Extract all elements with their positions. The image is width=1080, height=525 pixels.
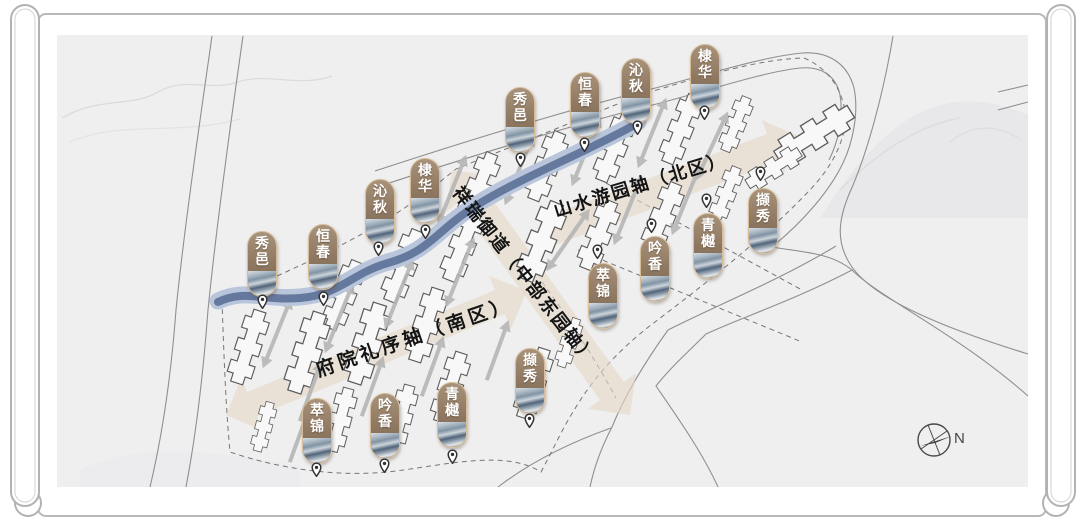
marker-label-char-2: 香 [378,414,392,430]
marker-xiexiu-south: 撷 秀 [515,348,545,414]
marker-label-char-1: 棣 [698,49,712,65]
scroll-rod-left [10,4,40,507]
pin-icon-qingyue-east [701,193,712,208]
marker-capsule: 吟 香 [640,236,670,302]
marker-xiuyi-west: 秀 邑 [247,231,277,297]
pin-icon-cuijin-south [311,462,322,477]
pin-icon-qinqiu-west [373,241,384,256]
marker-capsule: 青 樾 [437,382,467,448]
pin-icon-xiexiu-south [524,413,535,428]
marker-photo [589,303,617,328]
marker-capsule: 秀 邑 [247,231,277,297]
marker-xiuyi-north: 秀 邑 [505,87,535,153]
marker-label-char-1: 萃 [310,403,324,419]
marker-capsule: 棣 华 [690,44,720,110]
marker-label-char-1: 萃 [596,268,610,284]
pin-icon-cuijin-east [592,244,603,259]
scroll-rod-right [1046,4,1076,507]
marker-qinqiu-west: 沁 秋 [365,179,395,245]
marker-photo [506,127,534,152]
marker-photo [371,433,399,458]
marker-label-char-2: 香 [648,257,662,273]
marker-photo [303,438,331,463]
marker-label-char-2: 邑 [255,252,269,268]
pin-icon-qinqiu-north [632,120,643,135]
marker-photo [694,253,722,278]
marker-photo [411,198,439,223]
pin-icon-xiuyi-north [515,152,526,167]
marker-label-char-1: 撷 [523,353,537,369]
marker-label-char-2: 秀 [756,209,770,225]
marker-capsule: 吟 香 [370,393,400,459]
marker-dihua-north: 棣 华 [690,44,720,110]
pin-icon-yinxiang-south [379,458,390,473]
marker-yinxiang-east: 吟 香 [640,236,670,302]
marker-label-char-2: 锦 [310,419,324,435]
marker-label-char-2: 华 [418,179,432,195]
marker-photo [571,112,599,137]
marker-label-char-1: 吟 [648,241,662,257]
marker-capsule: 恒 春 [570,72,600,138]
pin-icon-hengchun-west [318,291,329,306]
marker-capsule: 秀 邑 [505,87,535,153]
marker-capsule: 沁 秋 [365,179,395,245]
marker-capsule: 沁 秋 [621,58,651,124]
marker-hengchun-north: 恒 春 [570,72,600,138]
marker-photo [749,228,777,253]
pin-icon-xiuyi-west [257,294,268,309]
marker-photo [248,271,276,296]
marker-label-char-1: 吟 [378,398,392,414]
marker-label-char-1: 秀 [255,236,269,252]
marker-qinqiu-north: 沁 秋 [621,58,651,124]
marker-label-char-1: 青 [445,387,459,403]
marker-cuijin-east: 萃 锦 [588,263,618,329]
marker-label-char-2: 秀 [523,369,537,385]
marker-dihua-west: 棣 华 [410,158,440,224]
marker-label-char-1: 秀 [513,92,527,108]
marker-qingyue-east: 青 樾 [693,213,723,279]
marker-label-char-1: 棣 [418,163,432,179]
marker-label-char-1: 恒 [578,77,592,93]
marker-label-char-2: 华 [698,65,712,81]
marker-photo [641,276,669,301]
marker-hengchun-west: 恒 春 [308,224,338,290]
site-plan-scroll: 山水游园轴（北区） 祥瑞御道（中部东园轴） 府院礼序轴（南区） 秀 邑 恒 春 … [0,0,1080,525]
marker-label-char-2: 樾 [701,234,715,250]
marker-label-char-2: 春 [316,245,330,261]
marker-qingyue-south: 青 樾 [437,382,467,448]
marker-label-char-2: 春 [578,93,592,109]
pin-icon-qingyue-south [447,449,458,464]
pin-icon-dihua-west [420,224,431,239]
marker-photo [438,422,466,447]
marker-label-char-2: 邑 [513,108,527,124]
pin-icon-dihua-north [699,105,710,120]
marker-capsule: 撷 秀 [515,348,545,414]
marker-capsule: 棣 华 [410,158,440,224]
marker-capsule: 青 樾 [693,213,723,279]
marker-label-char-2: 樾 [445,403,459,419]
marker-yinxiang-south: 吟 香 [370,393,400,459]
marker-label-char-2: 秋 [373,200,387,216]
marker-cuijin-south: 萃 锦 [302,398,332,464]
marker-capsule: 撷 秀 [748,188,778,254]
marker-label-char-2: 秋 [629,79,643,95]
marker-photo [516,388,544,413]
marker-label-char-1: 沁 [629,63,643,79]
marker-label-char-2: 锦 [596,284,610,300]
marker-label-char-1: 沁 [373,184,387,200]
marker-capsule: 萃 锦 [302,398,332,464]
marker-label-char-1: 恒 [316,229,330,245]
marker-label-char-1: 青 [701,218,715,234]
marker-label-char-1: 撷 [756,193,770,209]
pin-icon-xiexiu-east [755,166,766,181]
marker-xiexiu-east: 撷 秀 [748,188,778,254]
marker-capsule: 萃 锦 [588,263,618,329]
pin-icon-hengchun-north [579,137,590,152]
marker-photo [309,264,337,289]
marker-capsule: 恒 春 [308,224,338,290]
marker-layer: 秀 邑 恒 春 沁 秋 棣 华 [0,0,1080,525]
pin-icon-yinxiang-east [646,218,657,233]
